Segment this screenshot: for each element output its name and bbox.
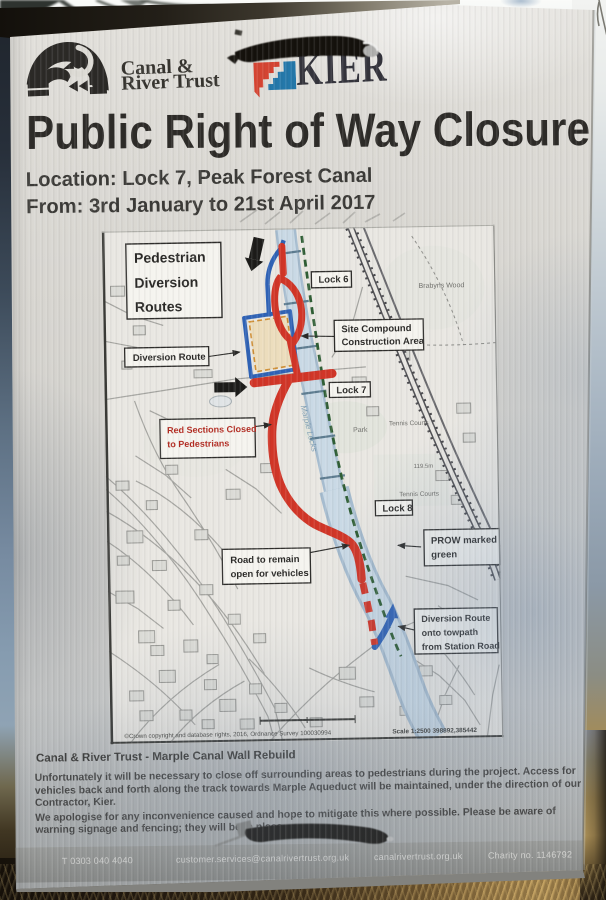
svg-text:Scale 1:2500 398892,385442: Scale 1:2500 398892,385442 <box>392 727 477 735</box>
svg-text:green: green <box>431 549 457 560</box>
svg-text:Lock 8: Lock 8 <box>382 503 412 515</box>
svg-text:Park: Park <box>353 427 368 434</box>
svg-text:from Station Road: from Station Road <box>422 641 500 652</box>
svg-text:Diversion Route: Diversion Route <box>133 352 206 364</box>
svg-text:to Pedestrians: to Pedestrians <box>167 438 229 449</box>
svg-text:Routes: Routes <box>135 298 183 315</box>
svg-text:119.5m: 119.5m <box>414 464 434 470</box>
svg-text:Lock 7: Lock 7 <box>336 385 366 397</box>
svg-text:Brabyns Wood: Brabyns Wood <box>419 282 465 290</box>
svg-text:PROW marked: PROW marked <box>431 535 497 547</box>
svg-text:Lock 6: Lock 6 <box>318 274 348 286</box>
svg-text:Pedestrian: Pedestrian <box>134 249 206 266</box>
svg-text:Diversion Route: Diversion Route <box>421 613 490 624</box>
svg-text:Red Sections Closed: Red Sections Closed <box>167 424 257 436</box>
svg-text:Road to remain: Road to remain <box>230 554 300 566</box>
svg-text:Construction Area: Construction Area <box>341 336 424 348</box>
svg-text:Diversion: Diversion <box>134 274 198 291</box>
svg-text:Tennis Courts: Tennis Courts <box>399 491 440 499</box>
svg-text:onto towpath: onto towpath <box>422 627 479 638</box>
svg-text:open for vehicles: open for vehicles <box>230 568 308 580</box>
svg-text:Site Compound: Site Compound <box>341 323 412 335</box>
svg-text:Tennis Courts: Tennis Courts <box>389 420 430 428</box>
